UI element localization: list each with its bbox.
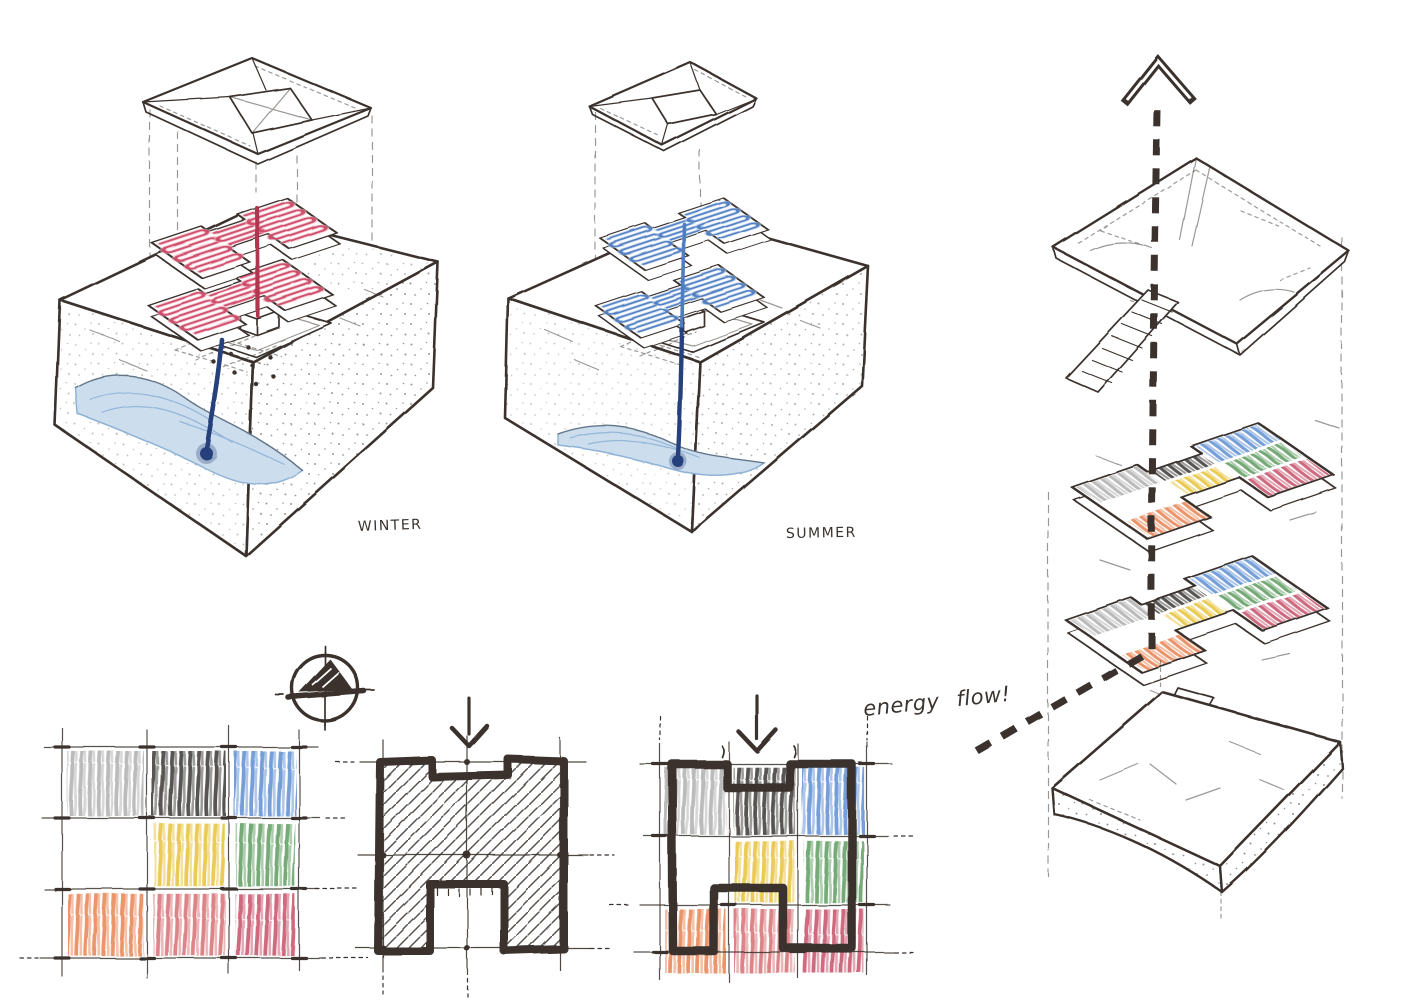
winter-diagram [55, 58, 438, 556]
summer-roof [589, 62, 756, 151]
winter-label: WINTER [358, 517, 423, 535]
north-arrow-icon [275, 646, 374, 730]
courtyard-plan-hatched [336, 698, 614, 996]
zone-blue [234, 751, 296, 816]
zone-orange [68, 894, 143, 956]
sketch-page: WINTER SUMMER energy flow! [0, 0, 1406, 1000]
energy-flow-diagram [977, 61, 1349, 922]
sketch-canvas: WINTER SUMMER energy flow! [0, 0, 1406, 1000]
zone-yellow [154, 824, 225, 887]
bottom-plans [20, 646, 916, 996]
zoning-cells [67, 751, 296, 956]
down-arrow-icon [739, 696, 776, 751]
zoned-plan-cells [664, 767, 865, 973]
zone-crimson [235, 894, 295, 956]
zone-green [236, 824, 295, 887]
ground-slab [1052, 660, 1342, 922]
winter-supply-line [257, 208, 258, 316]
winter-roof [143, 58, 371, 164]
summer-diagram [505, 62, 868, 532]
exploded-roof [1053, 158, 1349, 392]
energy-flow-label: energy flow! [862, 682, 1012, 721]
courtyard-plan-zoned [610, 696, 916, 982]
labels: WINTER SUMMER energy flow! [358, 517, 1012, 721]
zone-black [152, 751, 226, 816]
down-arrow-icon [452, 698, 487, 746]
upper-floor-plate [1072, 423, 1335, 552]
zone-red [153, 894, 225, 956]
zone-gray [67, 751, 144, 816]
lower-floor-plate [1066, 556, 1329, 685]
summer-label: SUMMER [786, 525, 857, 542]
zoning-grid-plan [20, 726, 368, 978]
